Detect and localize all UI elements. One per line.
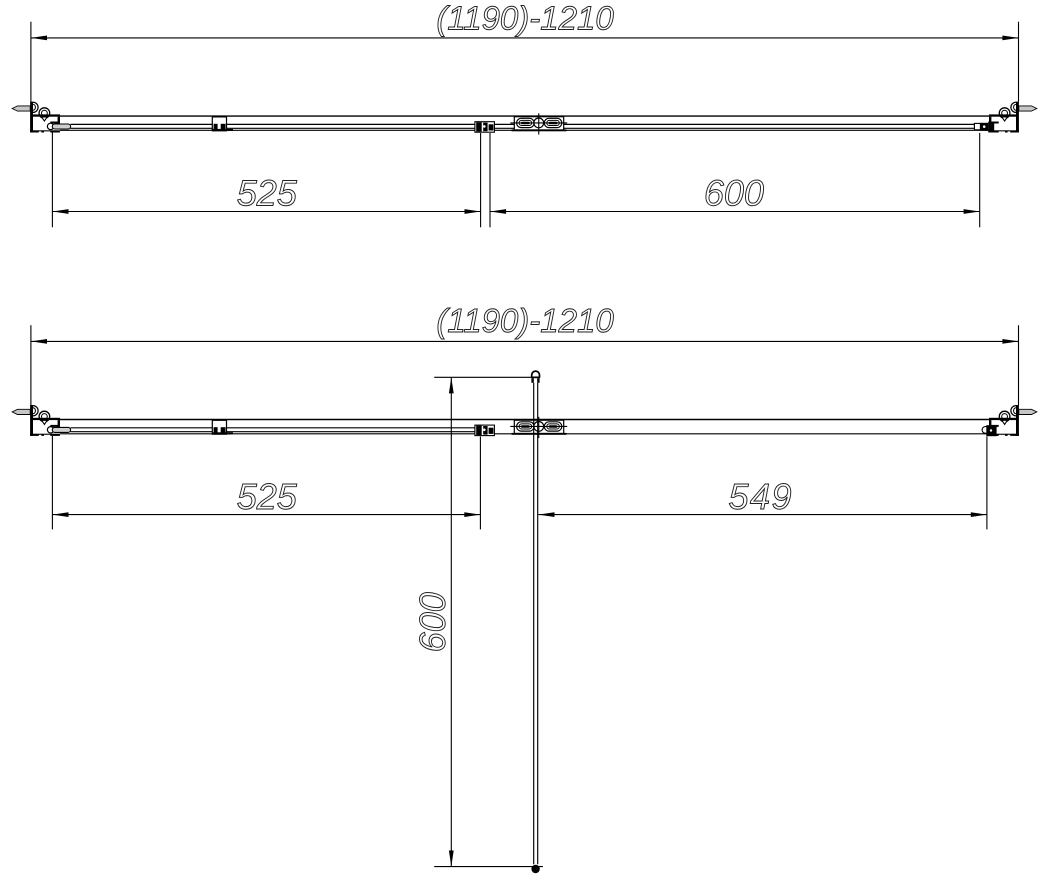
- svg-text:525: 525: [237, 173, 298, 214]
- svg-text:600: 600: [704, 173, 764, 214]
- svg-text:549: 549: [729, 476, 794, 517]
- svg-text:525: 525: [237, 476, 298, 517]
- svg-text:(1190)-1210: (1190)-1210: [436, 302, 614, 339]
- svg-text:(1190)-1210: (1190)-1210: [436, 0, 614, 36]
- svg-text:600: 600: [412, 592, 453, 652]
